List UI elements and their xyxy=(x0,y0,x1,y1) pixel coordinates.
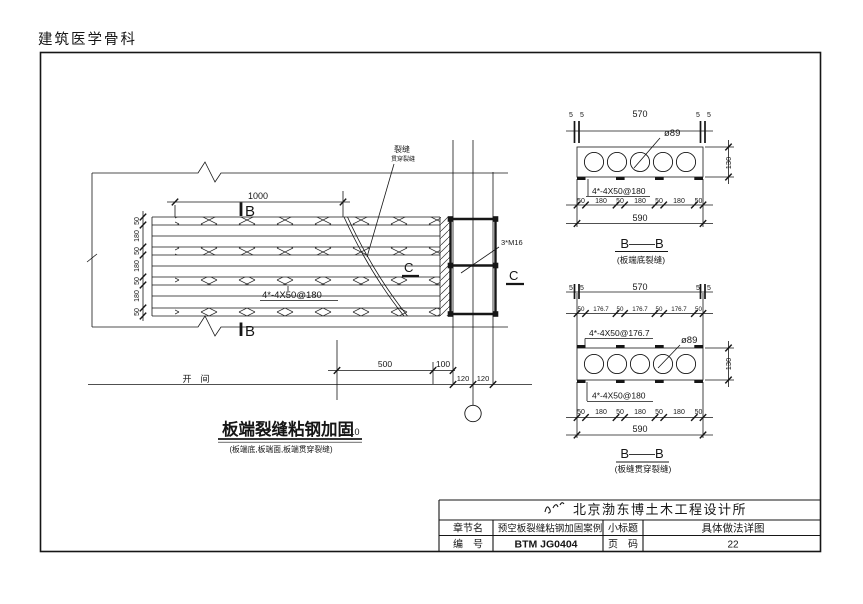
dim-1000-label: 1000 xyxy=(248,191,268,201)
section-note: (板端底裂缝) xyxy=(617,255,665,265)
chain-dim: 180 xyxy=(673,198,685,205)
dim-130-label: 130 xyxy=(724,358,733,371)
plate-strip-lines xyxy=(152,217,440,316)
section-top-labels: 5 5 570 5 5 ø89 130 4*-4X50@180 50 180 5… xyxy=(569,109,733,265)
dim-130-label: 130 xyxy=(724,157,733,170)
crack-callout-line1: 裂缝 xyxy=(394,144,410,154)
plan-labels: 1000 B B 裂缝 贯穿裂缝 4*-4X50@180 3*M16 C C 5… xyxy=(134,144,523,454)
crack-leader-line xyxy=(367,164,394,257)
chain-dim: 176.7 xyxy=(632,306,648,313)
steel-plate-strip xyxy=(175,217,440,225)
section-c-label-left: C xyxy=(404,260,413,275)
dim-570-label: 570 xyxy=(632,109,647,119)
page-header: 建筑医学骨科 xyxy=(38,31,137,48)
chapter-value: 预空板裂缝粘钢加固案例 xyxy=(498,523,603,535)
chain-dim: 50 xyxy=(655,198,663,205)
dia-label: ø89 xyxy=(681,335,697,346)
dim-5-label: 5 xyxy=(569,285,573,292)
dim-500-100 xyxy=(328,340,456,400)
chain-dim: 50 xyxy=(616,198,624,205)
chain-dim: 176.7 xyxy=(671,306,687,313)
subtitle-value: 具体做法详图 xyxy=(702,522,765,535)
slab-side-edges xyxy=(152,217,440,316)
dim-5-label: 5 xyxy=(707,285,711,292)
bolt-label: 3*M16 xyxy=(501,238,523,247)
chain-dim: 50 xyxy=(617,306,624,313)
chain-dim: 180 xyxy=(673,409,685,416)
axis-bubble xyxy=(465,405,481,421)
drawing-canvas: 建筑医学骨科 xyxy=(0,0,863,604)
company-logo-icon xyxy=(545,503,564,513)
section-name: B——B xyxy=(620,446,663,461)
title-block: 北京渤东博土木工程设计所 章节名 预空板裂缝粘钢加固案例 小标题 具体做法详图 … xyxy=(439,500,821,552)
plate-label: 4*-4X50@180 xyxy=(592,186,646,196)
section-b-label-top: B xyxy=(245,203,255,220)
plan-title-note: (板端底,板端面,板端贯穿裂缝) xyxy=(229,444,332,454)
sheet-frame xyxy=(41,53,821,552)
dia-label: ø89 xyxy=(664,128,680,139)
left-dim: 50 xyxy=(134,277,141,285)
chain-dim: 176.7 xyxy=(593,306,609,313)
steel-plate-strip xyxy=(175,308,440,316)
left-dim: 180 xyxy=(134,290,141,302)
section-note: (板缝贯穿裂缝) xyxy=(615,464,672,474)
number-value: BTM JG0404 xyxy=(514,539,577,551)
chain-dim: 50 xyxy=(695,409,703,416)
dim-100-label: 100 xyxy=(436,359,450,369)
slab-joint-lines xyxy=(152,236,440,296)
pagenum-label: 页 码 xyxy=(608,539,638,551)
chain-dim: 50 xyxy=(616,409,624,416)
dim-120-label: 120 xyxy=(457,374,470,383)
chain-dim: 50 xyxy=(695,198,703,205)
pagenum-value: 22 xyxy=(727,540,739,551)
dim-5-label: 5 xyxy=(696,285,700,292)
chain-dim: 180 xyxy=(634,409,646,416)
left-dim: 50 xyxy=(134,308,141,316)
section-c-label-right: C xyxy=(509,268,518,283)
crack-curve xyxy=(344,217,408,316)
dim-570-label: 570 xyxy=(632,282,647,292)
wall-lines xyxy=(453,140,493,405)
section-b-label-bottom: B xyxy=(245,323,255,340)
plate-label-bottom: 4*-4X50@180 xyxy=(592,391,646,401)
slab-outline xyxy=(577,348,703,380)
dim-5-label: 5 xyxy=(696,112,700,119)
chain-dim: 180 xyxy=(595,409,607,416)
chain-dim: 50 xyxy=(695,306,702,313)
section-bottom-labels: 5 5 570 5 5 50 176.7 50 176.7 50 176.7 5… xyxy=(569,282,733,474)
section-name: B——B xyxy=(620,236,663,251)
dim-590-label: 590 xyxy=(632,213,647,223)
number-label: 编 号 xyxy=(453,538,483,551)
section-bottom xyxy=(566,284,734,462)
crack-callout-line2: 贯穿裂缝 xyxy=(391,155,415,163)
dim-120-label: 120 xyxy=(477,374,490,383)
chain-dim: 50 xyxy=(578,306,585,313)
plan-plate-label: 4*-4X50@180 xyxy=(262,290,322,301)
subtitle-label: 小标题 xyxy=(608,523,638,535)
steel-plate-strip xyxy=(175,277,440,285)
company-name: 北京渤东博土木工程设计所 xyxy=(573,502,747,517)
slab-top-boundary xyxy=(92,162,508,182)
dim-590-label: 590 xyxy=(632,424,647,434)
left-dim: 50 xyxy=(134,217,141,225)
left-edge-line xyxy=(87,173,97,327)
chain-dim: 180 xyxy=(595,198,607,205)
bay-label: 开 间 xyxy=(182,373,209,384)
slab-bottom-boundary xyxy=(92,316,508,336)
chain-dim: 50 xyxy=(656,306,663,313)
dim-5-label: 5 xyxy=(580,285,584,292)
dim-5-label: 5 xyxy=(569,112,573,119)
chain-dim: 180 xyxy=(634,198,646,205)
chain-dim: 50 xyxy=(655,409,663,416)
drawing-sheet: 建筑医学骨科 xyxy=(0,0,863,604)
chain-dim: 50 xyxy=(577,409,585,416)
hollow-cores xyxy=(584,152,695,171)
left-dim: 180 xyxy=(134,260,141,272)
steel-plate-strip xyxy=(175,247,440,255)
dim-500-label: 500 xyxy=(378,359,392,369)
dim-5-label: 5 xyxy=(580,112,584,119)
dim-5-label: 5 xyxy=(707,112,711,119)
plan-title-scale: 1:10 xyxy=(342,427,360,437)
hollow-cores xyxy=(584,354,695,373)
left-dim: 180 xyxy=(134,230,141,242)
left-dim: 50 xyxy=(134,247,141,255)
plan-title: 板端裂缝粘钢加固 xyxy=(222,419,354,439)
end-plate-bars xyxy=(575,121,706,143)
plate-label-top: 4*-4X50@176.7 xyxy=(589,328,650,338)
chain-dim: 50 xyxy=(577,198,585,205)
chapter-label: 章节名 xyxy=(453,522,483,535)
slab-outline xyxy=(577,147,703,177)
